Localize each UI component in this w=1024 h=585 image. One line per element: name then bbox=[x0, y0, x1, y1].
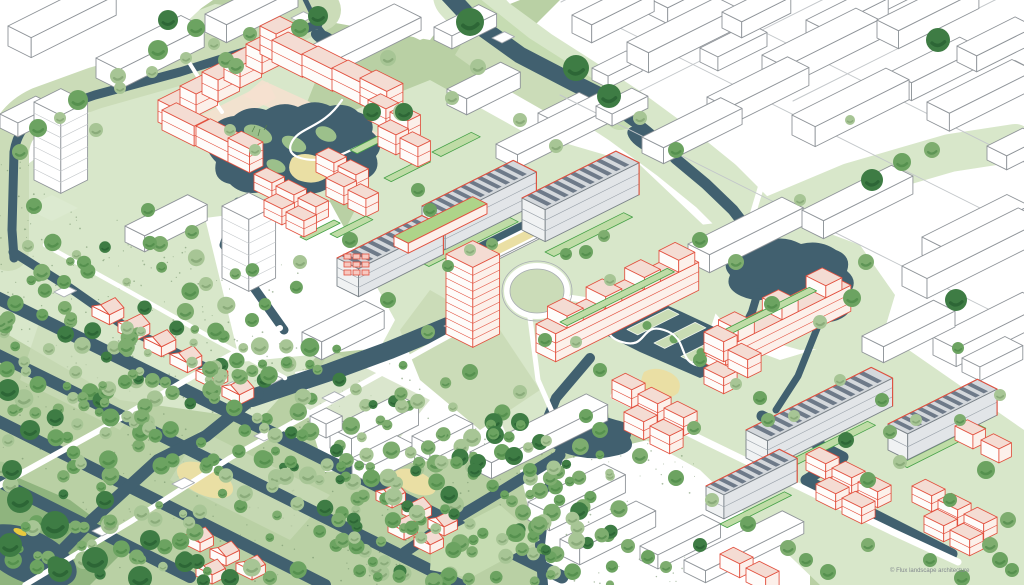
svg-text:© Flux landscape architecture: © Flux landscape architecture bbox=[890, 567, 970, 574]
